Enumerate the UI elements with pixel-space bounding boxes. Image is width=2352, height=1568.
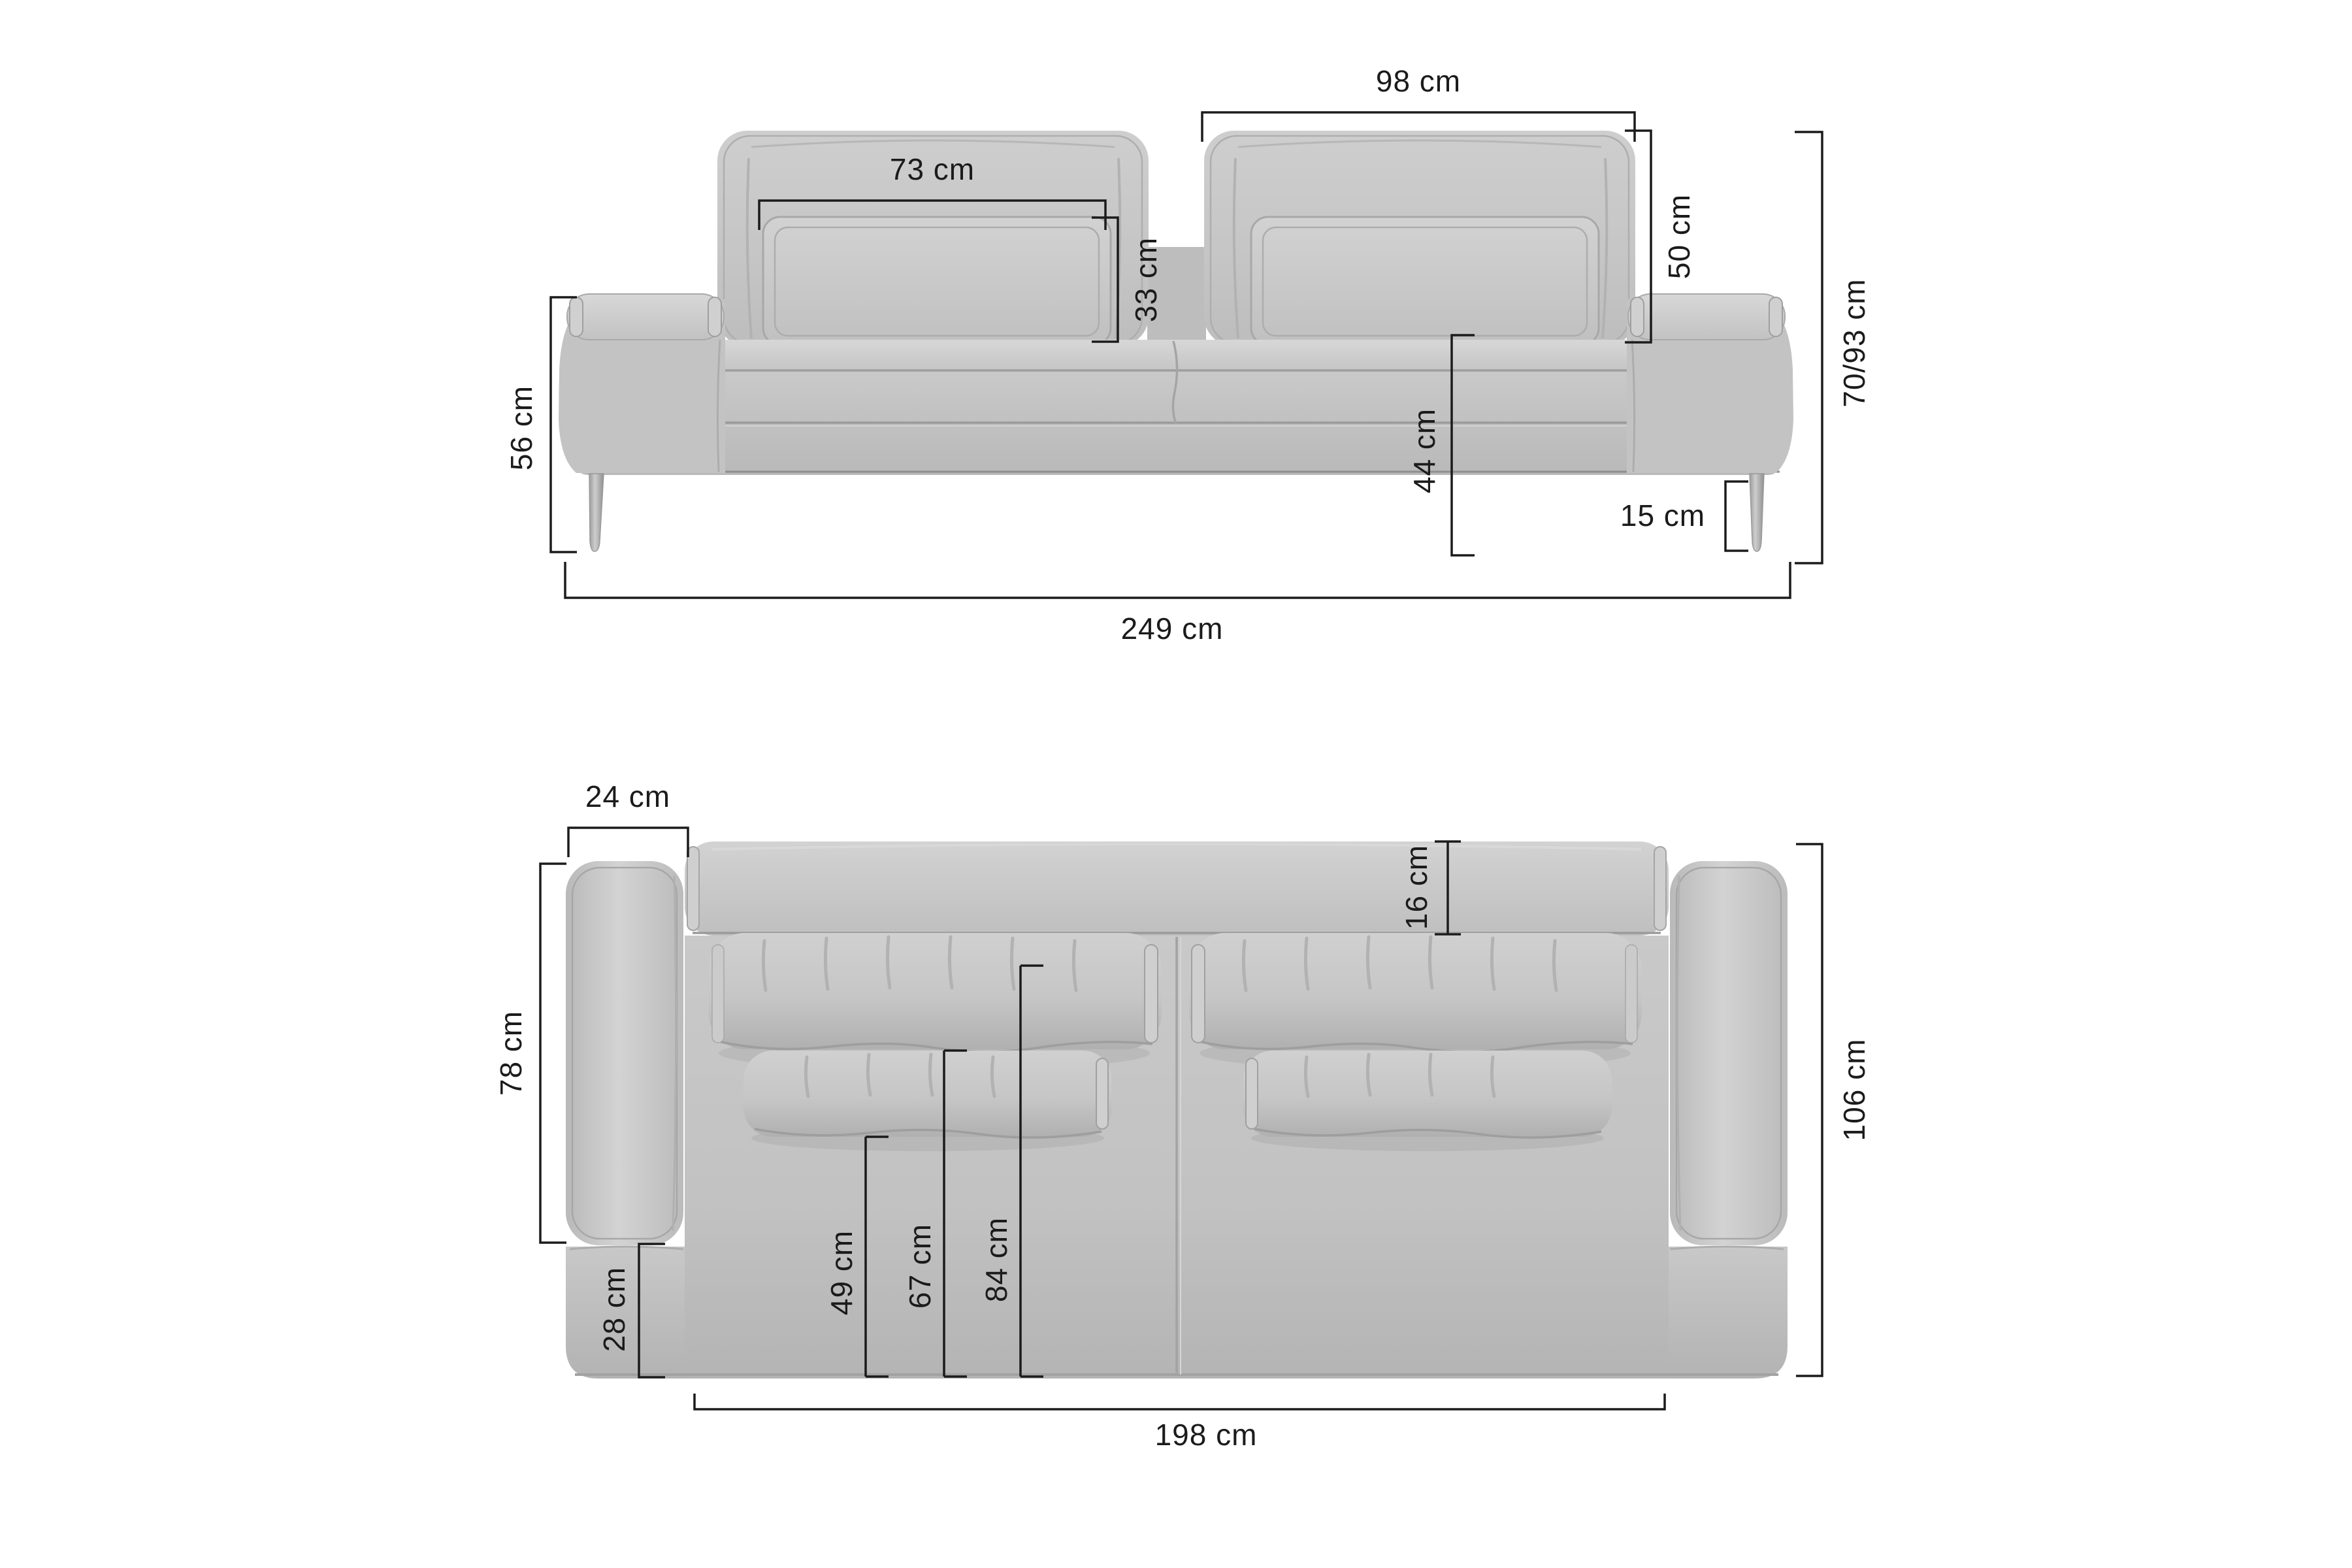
dim-overall-depth: 106 cm <box>1796 844 1871 1376</box>
dim-overall-height: 70/93 cm <box>1795 132 1871 563</box>
backrest-band-top <box>685 841 1669 936</box>
dim-seat-width: 198 cm <box>694 1394 1665 1452</box>
dim-armrest-length: 78 cm <box>494 864 566 1243</box>
top-view <box>566 841 1788 1379</box>
armrest-left-top <box>566 861 683 1245</box>
dim-depth-to-small-pillow-label: 49 cm <box>825 1230 858 1315</box>
sofa-leg-right <box>1750 474 1764 551</box>
lumbar-pillow-left-front <box>763 217 1111 345</box>
dim-seat-height-label: 44 cm <box>1407 408 1441 493</box>
dim-lumbar-pillow-height-label: 33 cm <box>1129 237 1163 322</box>
dim-back-cushion-height-label: 50 cm <box>1662 194 1696 279</box>
lumbar-pillow-right-top <box>1243 1051 1612 1151</box>
dim-backrest-thickness-label: 16 cm <box>1399 845 1433 930</box>
dim-overall-depth-label: 106 cm <box>1837 1039 1871 1141</box>
armrest-left-front <box>559 294 725 473</box>
seat-base-front <box>574 340 1782 475</box>
dim-armrest-width: 24 cm <box>568 779 688 857</box>
sofa-dimension-drawing: 98 cm 73 cm 33 cm 50 cm 70/93 cm 56 cm 4… <box>0 0 2352 1568</box>
back-cushion-left-top <box>709 933 1162 1070</box>
dim-back-cushion-width: 98 cm <box>1202 64 1635 142</box>
lumbar-pillow-left-top <box>743 1051 1112 1151</box>
dim-front-rail-depth-label: 28 cm <box>597 1267 631 1352</box>
diagram-canvas: 98 cm 73 cm 33 cm 50 cm 70/93 cm 56 cm 4… <box>0 0 2352 1568</box>
dim-armrest-width-label: 24 cm <box>585 779 670 813</box>
front-view <box>559 131 1793 551</box>
back-cushion-right-top <box>1189 933 1642 1070</box>
dim-seat-width-label: 198 cm <box>1155 1418 1258 1452</box>
dim-armrest-height-label: 56 cm <box>504 385 538 470</box>
dim-depth-to-back-cushion-label: 67 cm <box>903 1224 937 1309</box>
dim-leg-height: 15 cm <box>1620 482 1748 551</box>
dim-overall-height-label: 70/93 cm <box>1837 278 1871 407</box>
dim-leg-height-label: 15 cm <box>1620 498 1705 532</box>
dim-lumbar-pillow-width-label: 73 cm <box>890 152 975 186</box>
dim-overall-width: 249 cm <box>565 562 1790 645</box>
dim-back-cushion-width-label: 98 cm <box>1376 64 1461 98</box>
front-rail-corner-right <box>1669 1247 1788 1379</box>
lumbar-pillow-right-front <box>1251 217 1599 345</box>
dim-armrest-length-label: 78 cm <box>494 1011 528 1096</box>
dim-usable-seat-depth-label: 84 cm <box>979 1217 1013 1302</box>
armrest-right-top <box>1670 861 1788 1245</box>
sofa-leg-left <box>589 474 604 551</box>
dim-overall-width-label: 249 cm <box>1121 612 1224 645</box>
